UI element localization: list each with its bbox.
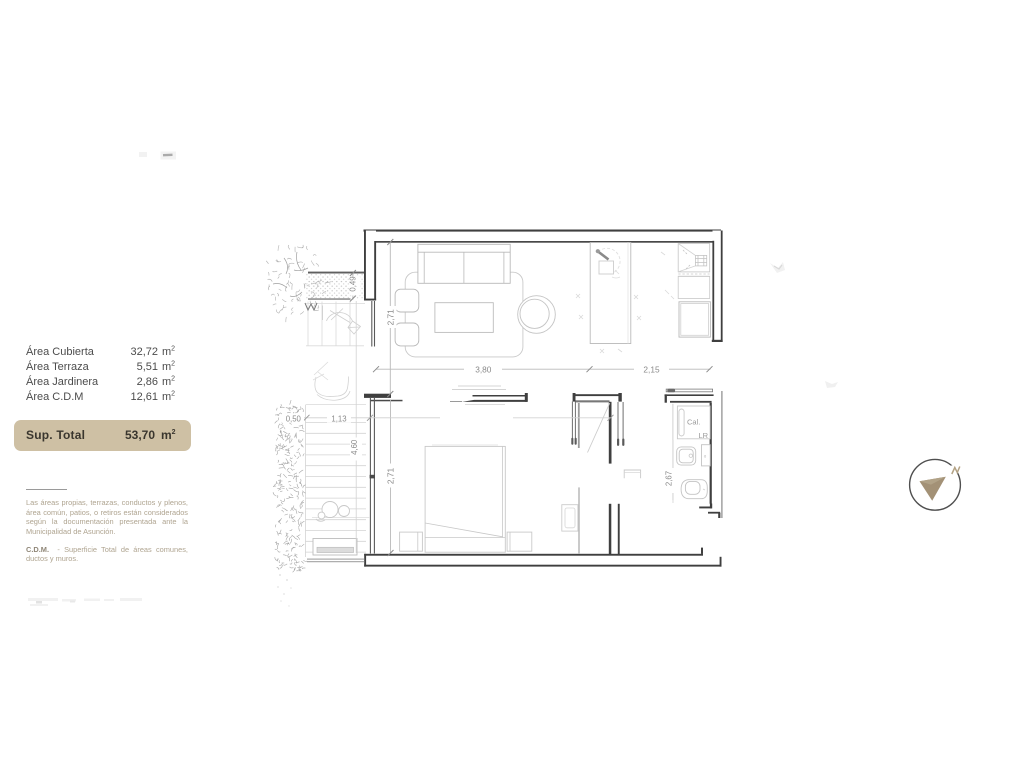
- svg-text:4,60: 4,60: [350, 439, 359, 455]
- svg-text:0,49: 0,49: [348, 276, 357, 291]
- svg-text:Cal.: Cal.: [687, 418, 700, 427]
- svg-text:1,13: 1,13: [331, 414, 346, 423]
- svg-text:0,50: 0,50: [286, 414, 302, 423]
- svg-text:2,71: 2,71: [385, 309, 395, 326]
- svg-text:2,67: 2,67: [664, 471, 673, 486]
- svg-text:2,71: 2,71: [386, 468, 396, 485]
- svg-text:3,80: 3,80: [475, 365, 492, 375]
- svg-text:2,15: 2,15: [643, 365, 660, 375]
- svg-text:LR: LR: [699, 431, 709, 440]
